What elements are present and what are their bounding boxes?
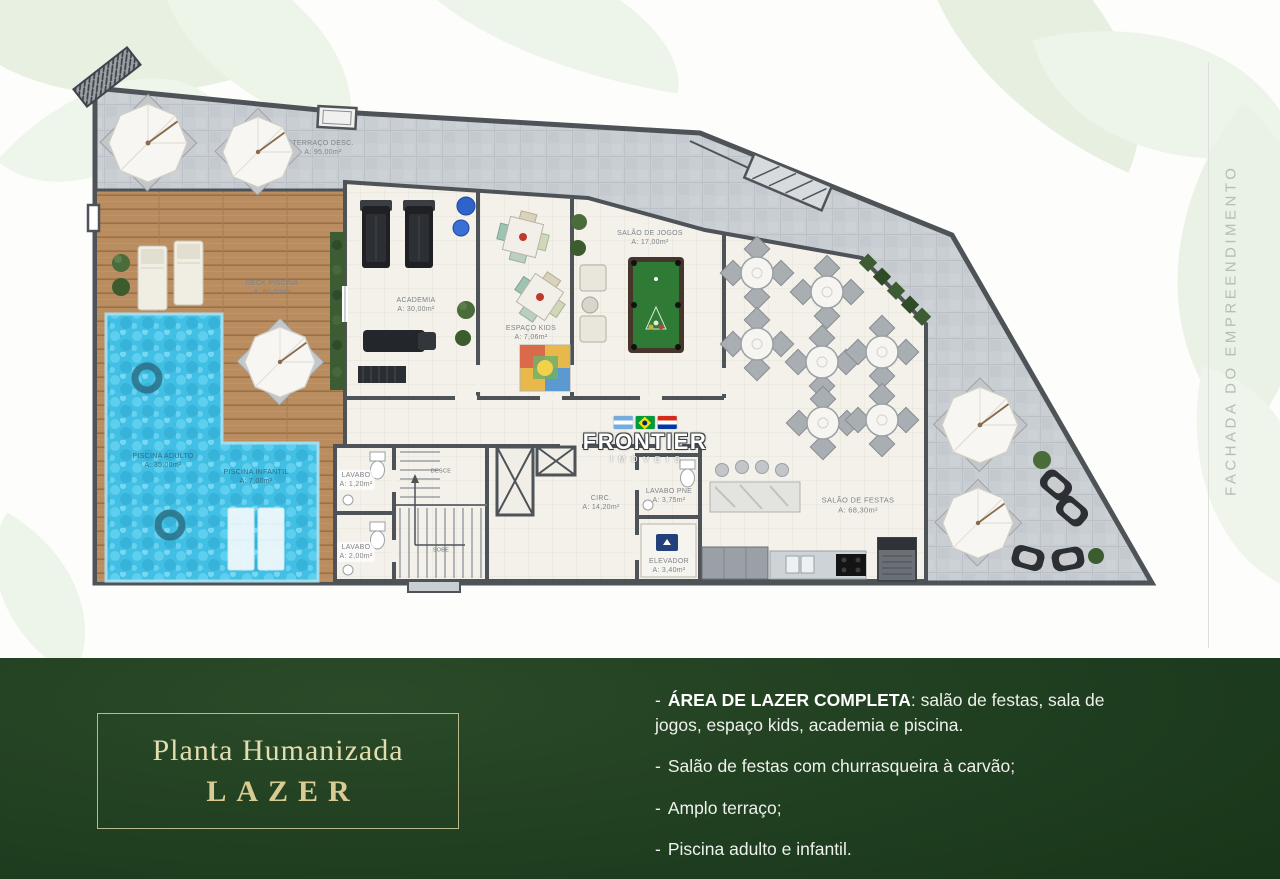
exercise-ball bbox=[453, 220, 469, 236]
label-elevador: ELEVADORA: 3,40m² bbox=[649, 557, 689, 575]
play-mat bbox=[520, 345, 570, 391]
label-academia: ACADEMIAA: 30,00m² bbox=[397, 296, 436, 314]
dumbbell-rack bbox=[358, 366, 406, 383]
feature-item: -ÁREA DE LAZER COMPLETA: salão de festas… bbox=[655, 688, 1145, 737]
bar-stool bbox=[736, 461, 749, 474]
sink bbox=[801, 556, 814, 573]
brand-subtitle: IMÓVEIS bbox=[583, 456, 707, 464]
bar-counter bbox=[710, 482, 800, 512]
label-lavabo-pne: LAVABO PNEA: 3,75m² bbox=[646, 487, 692, 505]
armchair bbox=[580, 316, 606, 342]
label-piscina-infantil: PISCINA INFANTILA: 7,00m² bbox=[223, 468, 288, 486]
plant bbox=[571, 214, 587, 230]
plant bbox=[1033, 451, 1051, 469]
label-salao-festas: SALÃO DE FESTASA: 68,30m² bbox=[822, 495, 895, 515]
grill-churrasqueira bbox=[878, 538, 916, 581]
armchair bbox=[580, 265, 606, 291]
facade-divider-line bbox=[1208, 62, 1209, 648]
label-stairs-up: SOBE bbox=[433, 547, 449, 554]
label-deck: DECK PISCINAA: 80,00m² bbox=[246, 279, 299, 297]
bullet-dash: - bbox=[655, 690, 661, 710]
sink bbox=[786, 556, 799, 573]
feature-item: -Piscina adulto e infantil. bbox=[655, 837, 1145, 862]
label-terraco: TERRAÇO DESC.A: 95,00m² bbox=[292, 139, 353, 157]
label-espaco-kids: ESPAÇO KIDSA: 7,06m² bbox=[506, 324, 556, 342]
side-table bbox=[582, 297, 598, 313]
sun-lounger bbox=[174, 241, 203, 305]
label-lavabo-1: LAVABOA: 1,20m² bbox=[337, 470, 374, 490]
brand-name: FRONTIER bbox=[583, 431, 707, 453]
exercise-ball bbox=[457, 197, 475, 215]
paraguay-flag bbox=[657, 416, 676, 429]
facade-caption: FACHADA DO EMPREENDIMENTO bbox=[1216, 85, 1246, 575]
bullet-dash: - bbox=[655, 798, 661, 818]
argentina-flag bbox=[613, 416, 632, 429]
plan-title: Planta Humanizada bbox=[152, 734, 403, 768]
label-circ: CIRC.A: 14,20m² bbox=[582, 494, 619, 512]
brazil-flag bbox=[635, 416, 654, 429]
kitchen-cabinet bbox=[702, 547, 768, 579]
plant bbox=[570, 240, 586, 256]
title-plate: Planta Humanizada LAZER bbox=[97, 713, 459, 829]
plant bbox=[1088, 548, 1104, 564]
plant bbox=[455, 330, 471, 346]
gym-bench bbox=[363, 330, 425, 352]
treadmill bbox=[403, 200, 435, 268]
page: TERRAÇO DESC.A: 95,00m² DECK PISCINAA: 8… bbox=[0, 0, 1280, 879]
bar-stool bbox=[776, 464, 789, 477]
side-gate bbox=[88, 205, 99, 231]
bullet-dash: - bbox=[655, 839, 661, 859]
bar-stool bbox=[756, 461, 769, 474]
plant bbox=[112, 278, 130, 296]
label-lavabo-2: LAVABOA: 2,00m² bbox=[337, 542, 374, 562]
pool-table bbox=[628, 257, 684, 353]
label-stairs-down: DESCE bbox=[431, 468, 451, 475]
flags-row bbox=[583, 416, 707, 429]
footer: Planta Humanizada LAZER -ÁREA DE LAZER C… bbox=[0, 658, 1280, 879]
feature-item: -Salão de festas com churrasqueira à car… bbox=[655, 754, 1145, 779]
feature-list: -ÁREA DE LAZER COMPLETA: salão de festas… bbox=[655, 688, 1145, 879]
feature-item: -Amplo terraço; bbox=[655, 796, 1145, 821]
sun-lounger bbox=[138, 246, 167, 310]
bullet-dash: - bbox=[655, 756, 661, 776]
stove bbox=[836, 554, 866, 576]
plan-subtitle: LAZER bbox=[196, 775, 359, 809]
terrace-bench bbox=[317, 106, 356, 129]
floor-plan bbox=[0, 0, 1280, 658]
bar-stool bbox=[716, 464, 729, 477]
brand-watermark: FRONTIER IMÓVEIS bbox=[583, 416, 707, 464]
gym-bench bbox=[418, 332, 436, 350]
label-piscina-adulto: PISCINA ADULTOA: 35,00m² bbox=[132, 452, 193, 470]
treadmill bbox=[360, 200, 392, 268]
label-salao-jogos: SALÃO DE JOGOSA: 17,00m² bbox=[617, 229, 683, 247]
